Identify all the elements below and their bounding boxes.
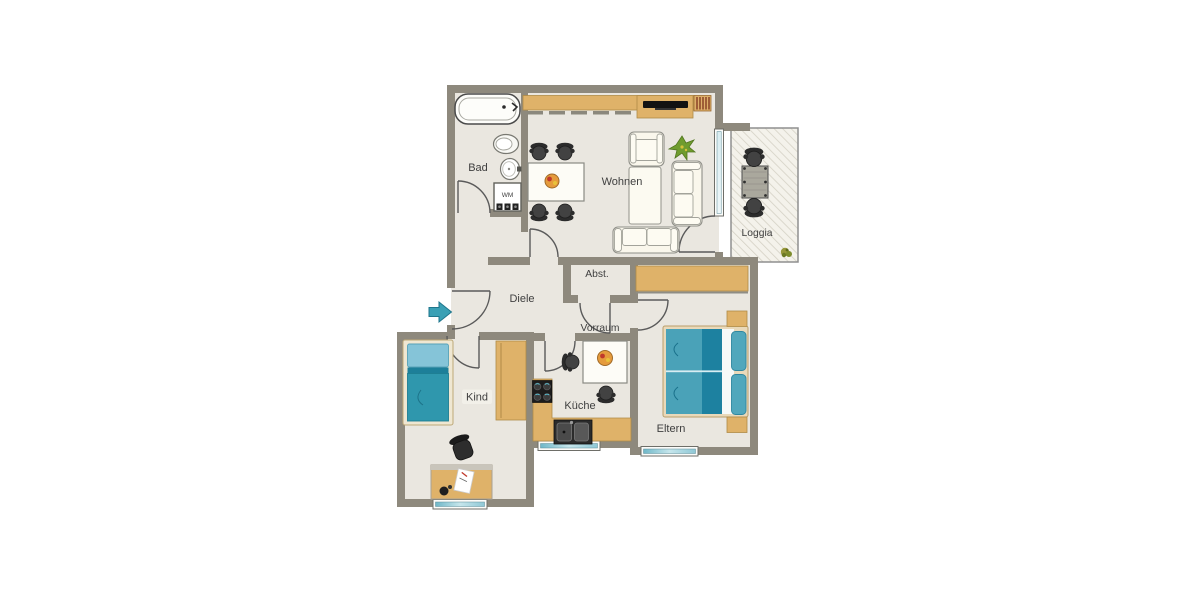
nightstand xyxy=(727,311,747,327)
entrance-arrow-icon xyxy=(429,302,452,322)
kitchen-table xyxy=(583,341,627,383)
wall-segment xyxy=(563,265,571,303)
wall-segment xyxy=(534,333,545,341)
desk-lamp xyxy=(440,487,449,496)
desk xyxy=(431,465,492,499)
wall-segment xyxy=(575,333,638,341)
wardrobe-eltern xyxy=(636,266,748,293)
wall-segment xyxy=(630,447,642,455)
radiator xyxy=(694,96,711,112)
room-label-wohnen: Wohnen xyxy=(602,176,643,188)
sofa-right xyxy=(672,161,702,226)
wardrobe-kind xyxy=(496,341,526,420)
wall-segment xyxy=(488,257,530,265)
room-label-bad: Bad xyxy=(468,162,488,174)
wall-segment xyxy=(479,332,534,340)
room-label-vorraum: Vorraum xyxy=(581,323,620,334)
wall-segment xyxy=(447,85,455,288)
bathtub xyxy=(455,94,520,124)
shelf-track xyxy=(527,111,631,115)
room-label-eltern: Eltern xyxy=(657,423,686,435)
dining-table xyxy=(528,163,584,201)
window-loggia-door xyxy=(715,129,724,216)
wall-segment xyxy=(715,85,723,127)
room-label-kind: Kind xyxy=(466,392,488,404)
tv xyxy=(643,101,688,108)
wall-segment xyxy=(697,447,758,455)
wall-segment xyxy=(447,325,455,339)
room-label-abstellraum: Abst. xyxy=(585,269,608,280)
toilet xyxy=(494,135,519,154)
room-label-loggia: Loggia xyxy=(742,228,773,239)
washing-machine-label: WM xyxy=(502,192,514,199)
kitchen-sink xyxy=(554,420,592,444)
room-label-kueche: Küche xyxy=(564,400,595,412)
loggia: Loggia xyxy=(731,128,798,262)
stove xyxy=(533,381,553,403)
double-bed xyxy=(663,326,748,417)
single-bed xyxy=(403,340,453,425)
window-eltern xyxy=(641,447,698,457)
window-kind xyxy=(433,500,487,510)
nightstand xyxy=(727,417,747,433)
tv-board xyxy=(637,96,693,119)
wall-segment xyxy=(447,85,723,93)
sofa-bottom xyxy=(613,227,679,253)
armchair xyxy=(629,132,664,166)
washing-machine: WM xyxy=(494,183,521,211)
wall-segment xyxy=(521,93,528,232)
loggia-table xyxy=(742,166,768,198)
wall-segment xyxy=(715,252,723,265)
room-label-diele: Diele xyxy=(509,293,534,305)
floorplan-page: Loggia xyxy=(0,0,1200,600)
wall-segment xyxy=(558,257,758,265)
floorplan-drawing: Loggia xyxy=(0,0,1200,600)
wall-segment xyxy=(750,257,758,455)
